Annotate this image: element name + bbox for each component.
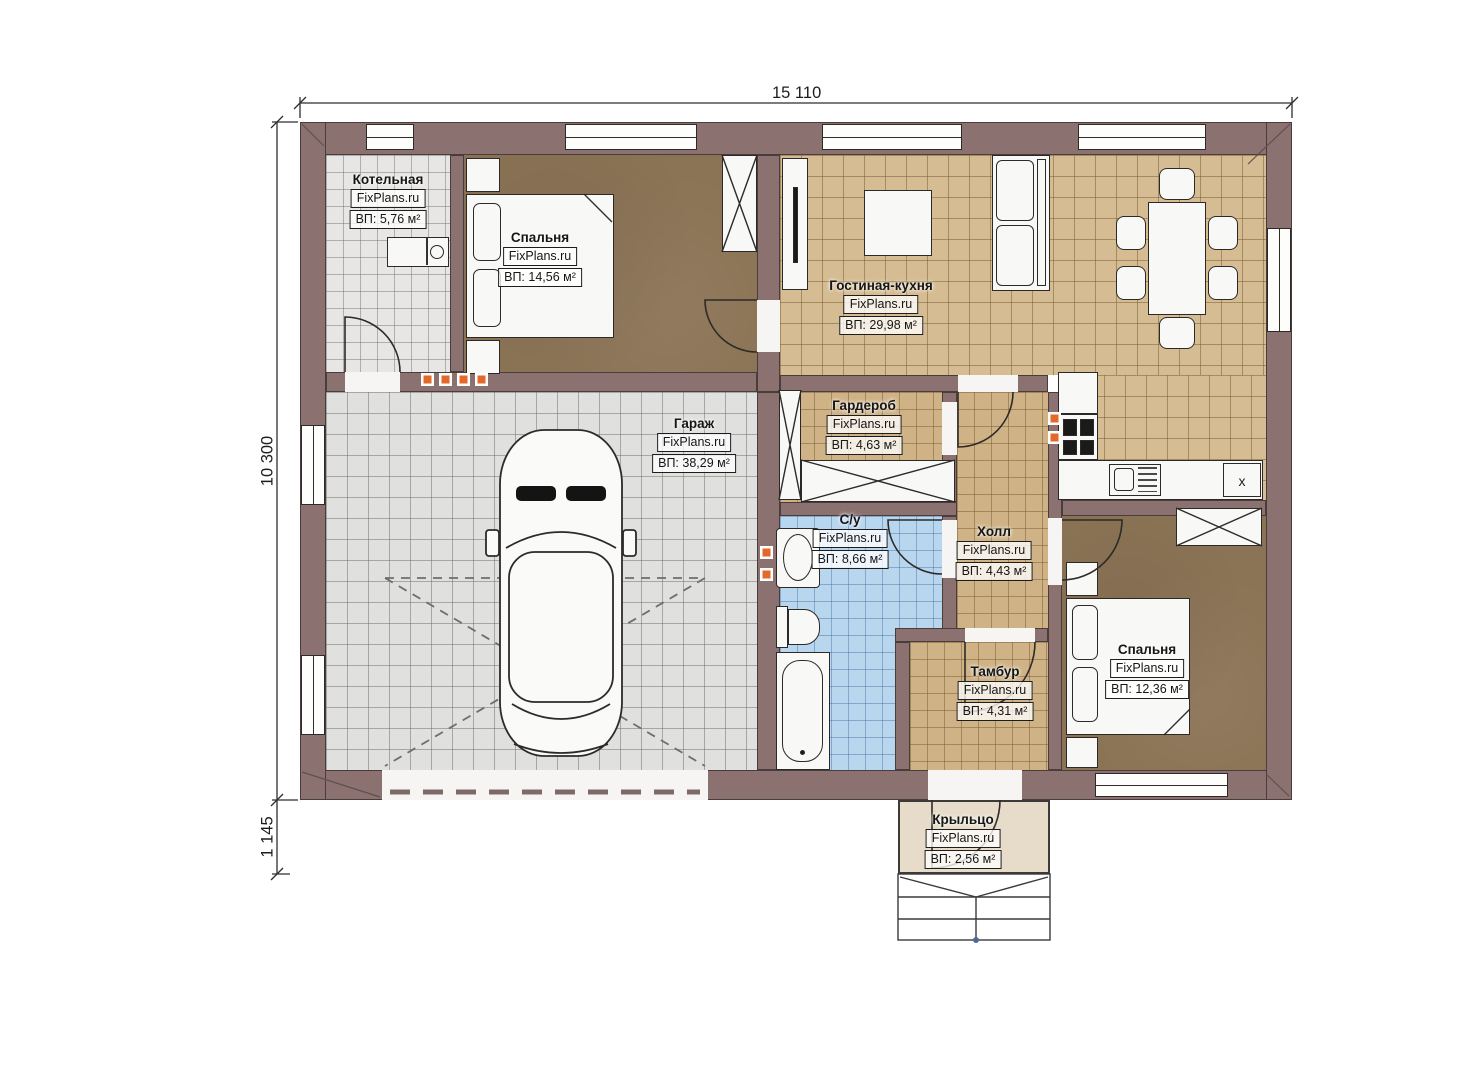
- wall-bath-tambour: [895, 642, 910, 770]
- bedroom2-door-opening: [1048, 518, 1062, 585]
- radiator-icon: [439, 373, 452, 386]
- pillow: [1072, 605, 1098, 660]
- room-label-bedroom1: Спальня FixPlans.ru ВП: 14,56 м²: [498, 230, 582, 287]
- toilet-tank: [776, 606, 788, 648]
- area-box: ВП: 29,98 м²: [839, 316, 923, 335]
- boiler-burner-circle: [430, 245, 444, 259]
- wardrobe-cabinet-bedroom1: [722, 155, 757, 252]
- dimension-porch: 1 145: [259, 816, 278, 857]
- room-name: Крыльцо: [932, 812, 993, 827]
- washbasin-bowl: [783, 534, 813, 581]
- bedroom1-door-opening: [757, 300, 780, 352]
- area-box: ВП: 38,29 м²: [652, 454, 736, 473]
- window-garage-left-2: [301, 655, 325, 735]
- burner: [1063, 440, 1077, 455]
- nightstand: [466, 340, 500, 374]
- area-box: ВП: 2,56 м²: [925, 850, 1002, 869]
- floor-plan-canvas: x: [0, 0, 1473, 1080]
- bathtub-inner: [782, 660, 823, 762]
- dining-chair: [1159, 168, 1195, 200]
- radiator-icon: [760, 568, 773, 581]
- room-name: С/у: [839, 512, 860, 527]
- window-living-right: [1267, 228, 1291, 332]
- area-box: ВП: 4,43 м²: [956, 562, 1033, 581]
- wardrobe-door-opening: [942, 402, 957, 455]
- area-box: ВП: 14,56 м²: [498, 268, 582, 287]
- room-name: Холл: [977, 524, 1011, 539]
- pillow: [473, 203, 501, 261]
- room-name: Гараж: [674, 416, 714, 431]
- window-garage-left-1: [301, 425, 325, 505]
- burner: [1080, 419, 1094, 436]
- wardrobe-cabinet-bedroom2: [1176, 508, 1262, 546]
- nightstand: [466, 158, 500, 192]
- brand-box: FixPlans.ru: [503, 247, 578, 266]
- room-label-bathroom: С/у FixPlans.ru ВП: 8,66 м²: [812, 512, 889, 569]
- room-label-porch: Крыльцо FixPlans.ru ВП: 2,56 м²: [925, 812, 1002, 869]
- bathtub: [776, 652, 830, 770]
- wardrobe-unit: [801, 460, 955, 502]
- radiator-icon: [760, 546, 773, 559]
- brand-box: FixPlans.ru: [813, 529, 888, 548]
- dining-chair: [1116, 266, 1146, 300]
- bathtub-drain: [800, 750, 805, 755]
- boiler-door-opening: [345, 372, 400, 392]
- kitchen-sink: [1109, 464, 1161, 496]
- tv-screen: [793, 187, 798, 263]
- brand-box: FixPlans.ru: [844, 295, 919, 314]
- nightstand: [1066, 737, 1098, 768]
- room-name: Котельная: [353, 172, 424, 187]
- kitchen-counter: x: [1058, 460, 1263, 500]
- area-box: ВП: 12,36 м²: [1105, 680, 1189, 699]
- boiler-unit: [387, 237, 449, 267]
- dining-chair: [1208, 266, 1238, 300]
- radiator-icon: [475, 373, 488, 386]
- burner: [1080, 440, 1094, 455]
- kitchen-cabinet-tall: [1058, 372, 1098, 414]
- porch-steps: [898, 874, 1050, 943]
- toilet-bowl: [788, 609, 820, 645]
- tambour-door-opening: [965, 628, 1035, 642]
- porch-door-opening: [928, 770, 1022, 800]
- window-dining: [1078, 124, 1206, 150]
- boiler-divider: [426, 238, 428, 265]
- stove: [1058, 414, 1098, 460]
- dimension-height: 10 300: [259, 436, 278, 486]
- sofa: [992, 155, 1050, 291]
- window-living: [822, 124, 962, 150]
- kitchen-cabinet-x: x: [1223, 463, 1261, 497]
- tv-unit: [782, 158, 808, 290]
- window-bedroom1: [565, 124, 697, 150]
- room-label-wardrobe: Гардероб FixPlans.ru ВП: 4,63 м²: [826, 398, 903, 455]
- wardrobe-shelf: [779, 390, 801, 500]
- room-label-living: Гостиная-кухня FixPlans.ru ВП: 29,98 м²: [829, 278, 932, 335]
- radiator-icon: [421, 373, 434, 386]
- brand-box: FixPlans.ru: [351, 189, 426, 208]
- room-label-garage: Гараж FixPlans.ru ВП: 38,29 м²: [652, 416, 736, 473]
- sofa-cushion: [996, 160, 1034, 221]
- floor-hall: [957, 392, 1048, 628]
- radiator-icon: [1048, 412, 1061, 425]
- wall-outer-right: [1266, 122, 1292, 800]
- dimension-width: 15 110: [772, 84, 821, 103]
- pillow: [1072, 667, 1098, 722]
- radiator-icon: [1048, 431, 1061, 444]
- room-label-bedroom2: Спальня FixPlans.ru ВП: 12,36 м²: [1105, 642, 1189, 699]
- room-name: Гардероб: [832, 398, 896, 413]
- pillow: [473, 269, 501, 327]
- sofa-cushion: [996, 225, 1034, 286]
- brand-box: FixPlans.ru: [958, 681, 1033, 700]
- area-box: ВП: 4,63 м²: [826, 436, 903, 455]
- burner: [1063, 419, 1077, 436]
- radiator-icon: [457, 373, 470, 386]
- sofa-back: [1037, 159, 1046, 286]
- sink-bowl: [1114, 468, 1134, 491]
- window-boiler: [366, 124, 414, 150]
- room-label-tambour: Тамбур FixPlans.ru ВП: 4,31 м²: [957, 664, 1034, 721]
- wall-bedroom1-living: [757, 155, 780, 392]
- room-label-boiler: Котельная FixPlans.ru ВП: 5,76 м²: [350, 172, 427, 229]
- area-box: ВП: 4,31 м²: [957, 702, 1034, 721]
- brand-box: FixPlans.ru: [657, 433, 732, 452]
- brand-box: FixPlans.ru: [827, 415, 902, 434]
- area-box: ВП: 8,66 м²: [812, 550, 889, 569]
- dining-chair: [1208, 216, 1238, 250]
- dining-chair: [1159, 317, 1195, 349]
- room-name: Спальня: [1118, 642, 1176, 657]
- room-name: Спальня: [511, 230, 569, 245]
- cabinet-mark: x: [1224, 464, 1260, 498]
- coffee-table: [864, 190, 932, 256]
- brand-box: FixPlans.ru: [1110, 659, 1185, 678]
- room-name: Тамбур: [971, 664, 1020, 679]
- sink-drainer: [1138, 467, 1157, 492]
- hall-living-opening: [958, 375, 1018, 392]
- area-box: ВП: 5,76 м²: [350, 210, 427, 229]
- dining-chair: [1116, 216, 1146, 250]
- room-label-hall: Холл FixPlans.ru ВП: 4,43 м²: [956, 524, 1033, 581]
- dining-table: [1148, 202, 1206, 315]
- brand-box: FixPlans.ru: [926, 829, 1001, 848]
- window-bedroom2: [1095, 773, 1228, 797]
- brand-box: FixPlans.ru: [957, 541, 1032, 560]
- room-name: Гостиная-кухня: [829, 278, 932, 293]
- garage-gate-opening: [382, 770, 708, 800]
- nightstand: [1066, 562, 1098, 596]
- wall-boiler-bedroom1: [450, 155, 464, 372]
